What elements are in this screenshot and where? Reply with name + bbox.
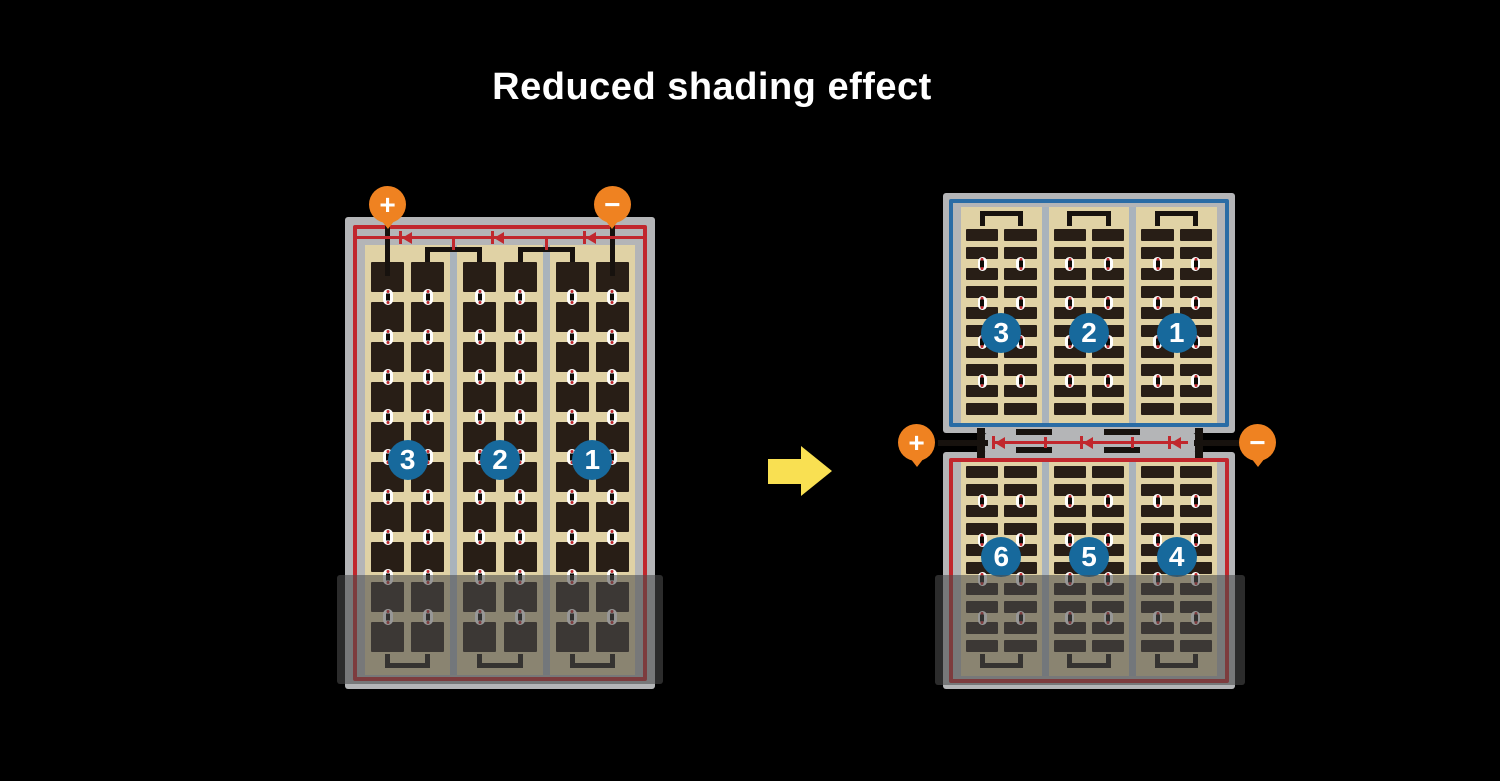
solar-cell-stripe	[1004, 403, 1036, 415]
connector-bar	[1068, 536, 1072, 543]
connector-bar	[1106, 497, 1110, 504]
busbar-top-n	[980, 211, 1023, 226]
connector-bar	[1156, 299, 1160, 306]
solar-cell	[411, 502, 444, 532]
connector-bar	[518, 374, 522, 381]
solar-cell	[596, 342, 629, 372]
connector-bar	[1019, 536, 1023, 543]
connector-bar	[518, 494, 522, 501]
connector-bar	[1156, 260, 1160, 267]
diode-tap	[1131, 437, 1134, 448]
solar-cell-stripe	[966, 229, 998, 241]
cell-connector	[1065, 296, 1074, 310]
solar-cell-stripe	[1180, 403, 1212, 415]
cell-connector	[383, 289, 393, 305]
cell-connector	[978, 296, 987, 310]
cell-connector	[607, 529, 617, 545]
solar-cell	[463, 302, 496, 332]
plus-icon: +	[379, 189, 395, 221]
solar-cell	[556, 542, 589, 572]
solar-cell	[411, 262, 444, 292]
connector-bar	[1156, 536, 1160, 543]
solar-cell	[463, 542, 496, 572]
solar-cell	[411, 382, 444, 412]
solar-cell	[371, 342, 404, 372]
junction-layer	[0, 0, 1500, 781]
cell-connector	[567, 489, 577, 505]
right-positive-terminal: +	[898, 424, 935, 461]
cell-connector	[423, 289, 433, 305]
cell-connector	[1191, 374, 1200, 388]
diode-tap	[452, 236, 455, 250]
connector-bar	[1156, 377, 1160, 384]
right-section-badge-2: 2	[1069, 313, 1109, 353]
solar-cell	[463, 342, 496, 372]
left-negative-terminal: −	[594, 186, 631, 223]
connector-bar	[1106, 260, 1110, 267]
connector-bar	[478, 414, 482, 421]
solar-cell-stripe	[1054, 403, 1086, 415]
cell-connector	[383, 529, 393, 545]
connector-bar	[570, 334, 574, 341]
solar-cell	[463, 382, 496, 412]
connector-bar	[478, 494, 482, 501]
cell-connector	[1104, 296, 1113, 310]
connector-bar	[610, 294, 614, 301]
solar-cell	[504, 542, 537, 572]
cell-connector	[1016, 257, 1025, 271]
connector-bar	[570, 494, 574, 501]
cell-connector	[1016, 494, 1025, 508]
connector-bar	[610, 374, 614, 381]
connector-bar	[478, 294, 482, 301]
diode-icon	[1171, 437, 1181, 449]
cell-connector	[607, 329, 617, 345]
solar-cell	[504, 382, 537, 412]
solar-cell-stripe	[1180, 229, 1212, 241]
group-divider	[1129, 207, 1136, 423]
cell-connector	[978, 374, 987, 388]
connector-bar	[1068, 299, 1072, 306]
cell-connector	[607, 289, 617, 305]
solar-cell	[556, 382, 589, 412]
arrow-shaft	[768, 459, 802, 484]
arrow-head	[801, 446, 832, 496]
connector-bar	[386, 534, 390, 541]
cell-connector	[383, 409, 393, 425]
left-section-badge-3: 3	[388, 440, 428, 480]
connector-bar	[478, 334, 482, 341]
cell-connector	[607, 369, 617, 385]
solar-cell	[556, 262, 589, 292]
connector-bar	[518, 534, 522, 541]
cell-connector	[383, 369, 393, 385]
connector-bar	[1019, 260, 1023, 267]
cell-connector	[607, 409, 617, 425]
cell-connector	[1153, 296, 1162, 310]
connector-bar	[518, 334, 522, 341]
group-divider	[1042, 207, 1049, 423]
cell-connector	[515, 369, 525, 385]
diode-icon	[402, 232, 412, 244]
solar-cell	[371, 302, 404, 332]
solar-cell	[504, 302, 537, 332]
connector-bar	[518, 414, 522, 421]
solar-cell-stripe	[1092, 403, 1124, 415]
connector-bar	[570, 374, 574, 381]
connector-bar	[426, 414, 430, 421]
connector-bar	[478, 374, 482, 381]
diode-icon	[995, 437, 1005, 449]
right-section-badge-1: 1	[1157, 313, 1197, 353]
cell-connector	[423, 529, 433, 545]
solar-cell-stripe	[966, 466, 998, 478]
cell-connector	[475, 409, 485, 425]
diagram-canvas: Reduced shading effect + − 3 2 1 + − 3 2…	[0, 0, 1500, 781]
right-negative-terminal: −	[1239, 424, 1276, 461]
cell-connector	[423, 489, 433, 505]
plus-icon: +	[908, 427, 924, 459]
cell-connector	[1016, 296, 1025, 310]
connector-bar	[426, 374, 430, 381]
busbar-top-n	[1155, 211, 1198, 226]
cell-connector	[978, 257, 987, 271]
right-section-badge-4: 4	[1157, 537, 1197, 577]
connector-bar	[1068, 260, 1072, 267]
cell-connector	[1104, 494, 1113, 508]
diagram-title: Reduced shading effect	[212, 66, 1212, 109]
solar-cell	[596, 302, 629, 332]
cell-connector	[383, 329, 393, 345]
cell-connector	[423, 369, 433, 385]
minus-icon: −	[604, 189, 620, 221]
busbar-top-n	[1067, 211, 1110, 226]
connector-bar	[980, 497, 984, 504]
connector-bar	[1019, 299, 1023, 306]
connector-bar	[386, 494, 390, 501]
solar-cell	[411, 302, 444, 332]
diode-cathode	[1168, 436, 1171, 449]
cell-connector	[1065, 374, 1074, 388]
solar-cell	[371, 502, 404, 532]
cell-connector	[607, 489, 617, 505]
connector-bar	[478, 534, 482, 541]
cell-connector	[475, 329, 485, 345]
cell-connector	[1191, 257, 1200, 271]
connector-bar	[426, 294, 430, 301]
cell-connector	[1016, 374, 1025, 388]
connector-bar	[1194, 536, 1198, 543]
cell-connector	[567, 329, 577, 345]
solar-cell-stripe	[1054, 229, 1086, 241]
solar-cell	[504, 342, 537, 372]
diode-line	[992, 441, 1188, 444]
cell-connector	[1016, 533, 1025, 547]
solar-cell-stripe	[966, 403, 998, 415]
connector-bar	[980, 536, 984, 543]
connector-bar	[386, 294, 390, 301]
diode-tap	[1044, 437, 1047, 448]
cell-connector	[1191, 494, 1200, 508]
solar-cell-stripe	[1004, 466, 1036, 478]
cell-connector	[567, 289, 577, 305]
junction-strip	[985, 433, 1195, 453]
connector-bar	[610, 494, 614, 501]
solar-cell-stripe	[1054, 466, 1086, 478]
cell-connector	[515, 409, 525, 425]
solar-cell	[463, 502, 496, 532]
solar-cell	[556, 302, 589, 332]
connector-bar	[386, 334, 390, 341]
connector-bar	[610, 334, 614, 341]
shading-overlay-left	[337, 575, 663, 684]
cell-connector	[1065, 494, 1074, 508]
connector-bar	[1068, 497, 1072, 504]
cell-connector	[1065, 257, 1074, 271]
connector-bar	[518, 294, 522, 301]
connector-bar	[1106, 299, 1110, 306]
connector-bar	[570, 414, 574, 421]
connector-bar	[426, 494, 430, 501]
cell-connector	[1104, 257, 1113, 271]
diode-cathode	[1080, 436, 1083, 449]
solar-cell-stripe	[1141, 229, 1173, 241]
diode-tap	[545, 236, 548, 250]
solar-cell	[463, 262, 496, 292]
connector-bar	[1156, 497, 1160, 504]
connector-bar	[1106, 536, 1110, 543]
solar-cell	[596, 382, 629, 412]
shading-overlay-right	[935, 575, 1245, 685]
right-section-badge-5: 5	[1069, 537, 1109, 577]
connector-bar	[426, 334, 430, 341]
cell-connector	[567, 409, 577, 425]
solar-cell	[596, 502, 629, 532]
connector-bar	[1194, 260, 1198, 267]
connector-bar	[980, 377, 984, 384]
solar-cell-stripe	[1092, 466, 1124, 478]
connector-bar	[610, 534, 614, 541]
solar-cell	[371, 382, 404, 412]
connector-bar	[980, 299, 984, 306]
connector-bar	[570, 534, 574, 541]
cell-connector	[423, 329, 433, 345]
diode-cathode	[992, 436, 995, 449]
cell-connector	[1191, 296, 1200, 310]
diode-icon	[494, 232, 504, 244]
solar-cell	[411, 342, 444, 372]
cell-connector	[475, 489, 485, 505]
cell-connector	[567, 529, 577, 545]
cell-connector	[475, 529, 485, 545]
connector-bar	[1194, 299, 1198, 306]
connector-bar	[1194, 497, 1198, 504]
terminal-stem	[1194, 440, 1242, 446]
cell-connector	[1153, 494, 1162, 508]
connector-bar	[610, 414, 614, 421]
left-section-badge-2: 2	[480, 440, 520, 480]
connector-bar	[386, 374, 390, 381]
connector-bar	[980, 260, 984, 267]
cell-connector	[423, 409, 433, 425]
cell-connector	[567, 369, 577, 385]
solar-cell	[556, 502, 589, 532]
cell-connector	[515, 489, 525, 505]
left-positive-terminal: +	[369, 186, 406, 223]
diode-icon	[1083, 437, 1093, 449]
solar-cell-stripe	[1092, 229, 1124, 241]
solar-cell	[371, 542, 404, 572]
solar-cell	[411, 542, 444, 572]
solar-cell-stripe	[1141, 403, 1173, 415]
diode-icon	[586, 232, 596, 244]
solar-cell	[596, 542, 629, 572]
solar-cell	[504, 262, 537, 292]
solar-cell	[504, 502, 537, 532]
connector-bar	[570, 294, 574, 301]
cell-connector	[515, 289, 525, 305]
cell-connector	[515, 329, 525, 345]
cell-connector	[1153, 257, 1162, 271]
terminal-stem	[938, 440, 988, 446]
connector-bar	[1019, 377, 1023, 384]
solar-cell-stripe	[1141, 466, 1173, 478]
minus-icon: −	[1249, 427, 1265, 459]
connector-bar	[1194, 377, 1198, 384]
connector-bar	[386, 414, 390, 421]
cell-connector	[475, 369, 485, 385]
cell-connector	[1104, 374, 1113, 388]
connector-bar	[1019, 497, 1023, 504]
solar-cell	[556, 342, 589, 372]
cell-connector	[978, 494, 987, 508]
connector-bar	[426, 534, 430, 541]
solar-cell-stripe	[1004, 229, 1036, 241]
cell-connector	[475, 289, 485, 305]
connector-bar	[1068, 377, 1072, 384]
solar-cell-stripe	[1180, 466, 1212, 478]
connector-bar	[1106, 377, 1110, 384]
cell-connector	[383, 489, 393, 505]
cell-connector	[1153, 374, 1162, 388]
cell-connector	[515, 529, 525, 545]
